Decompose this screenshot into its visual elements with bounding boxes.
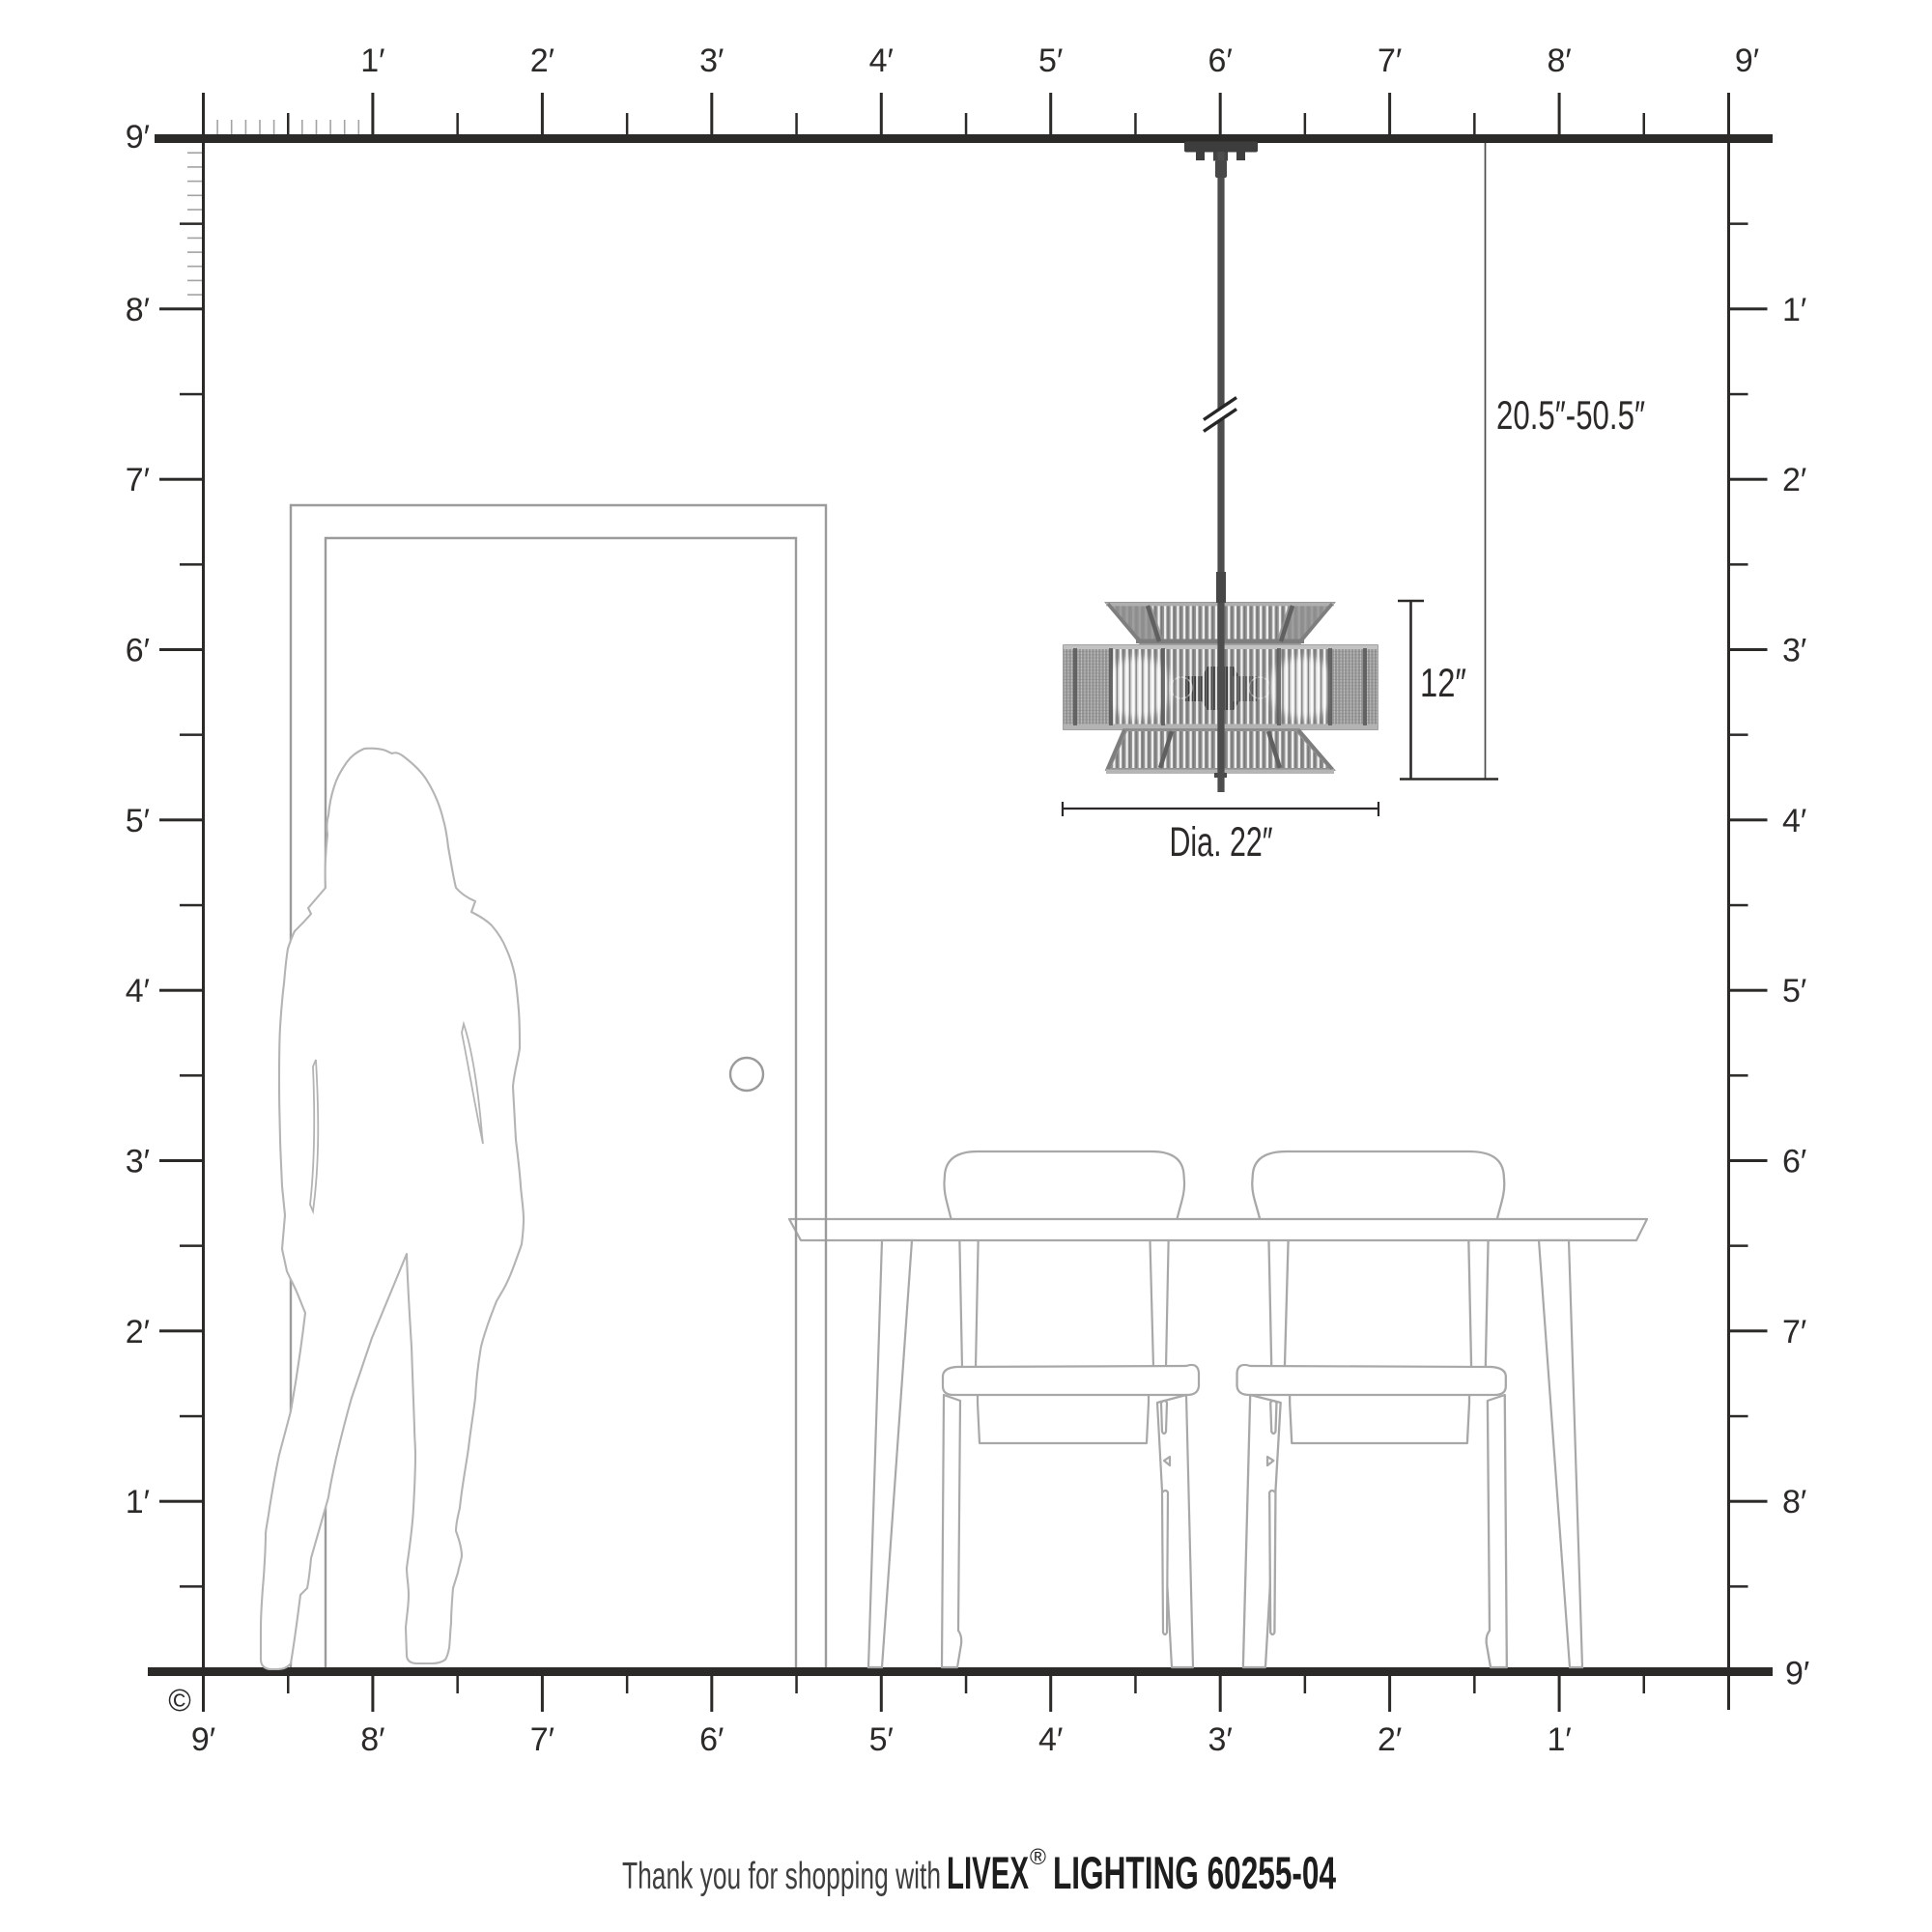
svg-text:Dia. 22″: Dia. 22″ (1170, 819, 1273, 866)
svg-text:6′: 6′ (126, 633, 150, 669)
svg-text:9′: 9′ (126, 119, 150, 156)
svg-text:2′: 2′ (1378, 1721, 1402, 1758)
svg-text:2′: 2′ (1782, 462, 1806, 498)
svg-text:8′: 8′ (1782, 1484, 1806, 1520)
svg-text:1′: 1′ (1547, 1721, 1571, 1758)
svg-text:LIVEX: LIVEX (947, 1847, 1029, 1898)
svg-text:LIGHTING 60255-04: LIGHTING 60255-04 (1053, 1847, 1336, 1898)
svg-text:1′: 1′ (126, 1484, 150, 1520)
svg-text:7′: 7′ (1782, 1314, 1806, 1350)
svg-text:3′: 3′ (126, 1144, 150, 1180)
svg-text:7′: 7′ (126, 462, 150, 498)
svg-text:6′: 6′ (1782, 1144, 1806, 1180)
svg-text:7′: 7′ (530, 1721, 554, 1758)
svg-text:4′: 4′ (126, 973, 150, 1009)
svg-text:2′: 2′ (530, 43, 554, 79)
svg-text:6′: 6′ (1208, 43, 1233, 79)
svg-text:20.5″-50.5″: 20.5″-50.5″ (1496, 392, 1645, 438)
svg-text:2′: 2′ (126, 1314, 150, 1350)
svg-text:1′: 1′ (360, 43, 384, 79)
svg-text:5′: 5′ (1038, 43, 1063, 79)
svg-text:4′: 4′ (1038, 1721, 1063, 1758)
svg-text:12″: 12″ (1420, 660, 1466, 705)
svg-text:®: ® (1030, 1844, 1046, 1869)
svg-text:5′: 5′ (869, 1721, 894, 1758)
svg-text:3′: 3′ (699, 43, 724, 79)
svg-text:8′: 8′ (360, 1721, 384, 1758)
svg-text:1′: 1′ (1782, 292, 1806, 328)
svg-text:©: © (168, 1683, 191, 1718)
svg-text:6′: 6′ (699, 1721, 724, 1758)
svg-text:9′: 9′ (191, 1721, 215, 1758)
svg-text:4′: 4′ (869, 43, 894, 79)
svg-text:5′: 5′ (126, 803, 150, 839)
svg-text:3′: 3′ (1782, 633, 1806, 669)
svg-text:7′: 7′ (1378, 43, 1402, 79)
svg-text:3′: 3′ (1208, 1721, 1233, 1758)
svg-text:8′: 8′ (126, 292, 150, 328)
svg-text:8′: 8′ (1547, 43, 1571, 79)
svg-text:9′: 9′ (1735, 43, 1759, 79)
svg-text:9′: 9′ (1785, 1656, 1809, 1692)
svg-text:5′: 5′ (1782, 973, 1806, 1009)
svg-text:Thank you for shopping with: Thank you for shopping with (622, 1856, 941, 1897)
svg-text:4′: 4′ (1782, 803, 1806, 839)
